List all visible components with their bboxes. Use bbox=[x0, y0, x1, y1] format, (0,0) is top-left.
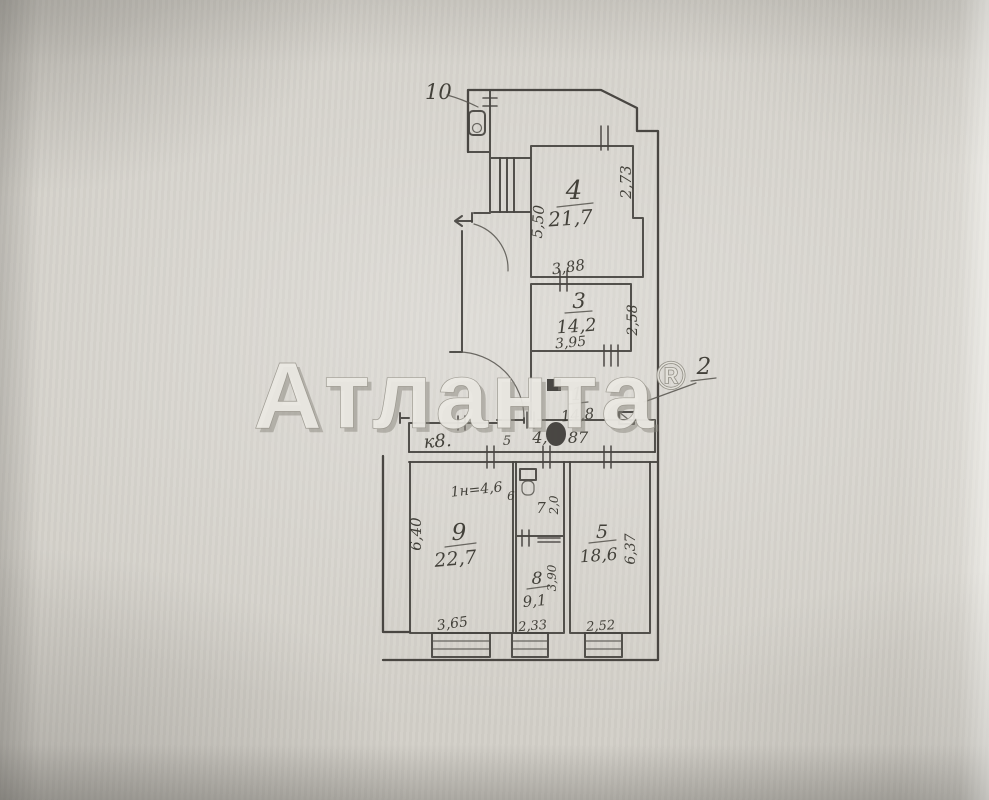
window-box bbox=[512, 633, 548, 657]
hall-bottom-double-wall bbox=[409, 452, 658, 462]
room-7-number: 7 bbox=[536, 499, 546, 517]
window-lines bbox=[585, 641, 622, 649]
room-4-dim-bottom: 3,88 bbox=[551, 256, 587, 278]
callout-top-unit: 10 bbox=[425, 80, 452, 104]
mezzanine-note: 1н=4,6 bbox=[450, 479, 504, 500]
tick bbox=[522, 530, 560, 546]
room-8-number: 8 bbox=[532, 569, 543, 589]
room-9-labels: 1н=4,6 9 22,7 6,40 3,65 bbox=[407, 479, 503, 634]
room-4-number: 4 bbox=[565, 176, 583, 206]
toilet-bowl-bath bbox=[522, 481, 534, 495]
room-5-number: 5 bbox=[596, 521, 608, 543]
room-5-dim-bottom: 2,52 bbox=[585, 618, 616, 635]
callout-right-unit: 2 bbox=[696, 354, 712, 380]
window-lines bbox=[512, 641, 548, 649]
room-4-dim-left: 5,50 bbox=[528, 204, 548, 239]
window-lines bbox=[432, 641, 490, 649]
room-8-dim-bottom: 2,33 bbox=[517, 618, 548, 636]
room-4-labels: 4 21,7 5,50 2,73 3,88 bbox=[528, 165, 635, 278]
room-4-area: 21,7 bbox=[546, 204, 593, 231]
room-4-dim-right: 2,73 bbox=[617, 165, 635, 199]
room-9-dim-bottom: 3,65 bbox=[436, 614, 469, 634]
toilet-bowl-top bbox=[473, 124, 482, 133]
stair-treads bbox=[500, 158, 514, 212]
room-3-number: 3 bbox=[572, 289, 585, 313]
room-8-labels: 8 9,1 3,90 2,33 bbox=[517, 564, 559, 635]
watermark-brand: Атланта bbox=[253, 343, 657, 449]
room-9-number: 9 bbox=[452, 520, 467, 546]
room-5-labels: 5 18,6 6,37 2,52 bbox=[579, 521, 639, 635]
entry-arrow bbox=[455, 216, 472, 226]
window-box bbox=[585, 633, 622, 657]
staircase bbox=[500, 158, 514, 212]
room-5-dim-right: 6,37 bbox=[623, 533, 639, 564]
room-5-area: 18,6 bbox=[579, 545, 618, 568]
room-7-dim-right: 2,0 bbox=[547, 495, 561, 515]
toilet-cistern-bath bbox=[520, 469, 536, 480]
floor-plan-drawing: 10 2 4 21,7 5,50 2,73 3,88 3 14,2 3,95 2… bbox=[0, 0, 989, 800]
scanned-floor-plan-page: 10 2 4 21,7 5,50 2,73 3,88 3 14,2 3,95 2… bbox=[0, 0, 989, 800]
room-8-area: 9,1 bbox=[522, 591, 547, 611]
door-swing-arc-upper bbox=[474, 224, 508, 271]
room-8-dim-right: 3,90 bbox=[545, 564, 559, 591]
room-6-number: 6 bbox=[507, 489, 515, 503]
room-9-area: 22,7 bbox=[432, 546, 478, 572]
watermark-registered-icon: ® bbox=[656, 354, 685, 398]
facade-windows bbox=[432, 633, 622, 657]
window-box bbox=[432, 633, 490, 657]
room-3-dim-right: 2,58 bbox=[625, 304, 641, 336]
watermark: Атланта Атланта ® bbox=[253, 343, 686, 453]
room-9-dim-left: 6,40 bbox=[407, 517, 425, 551]
